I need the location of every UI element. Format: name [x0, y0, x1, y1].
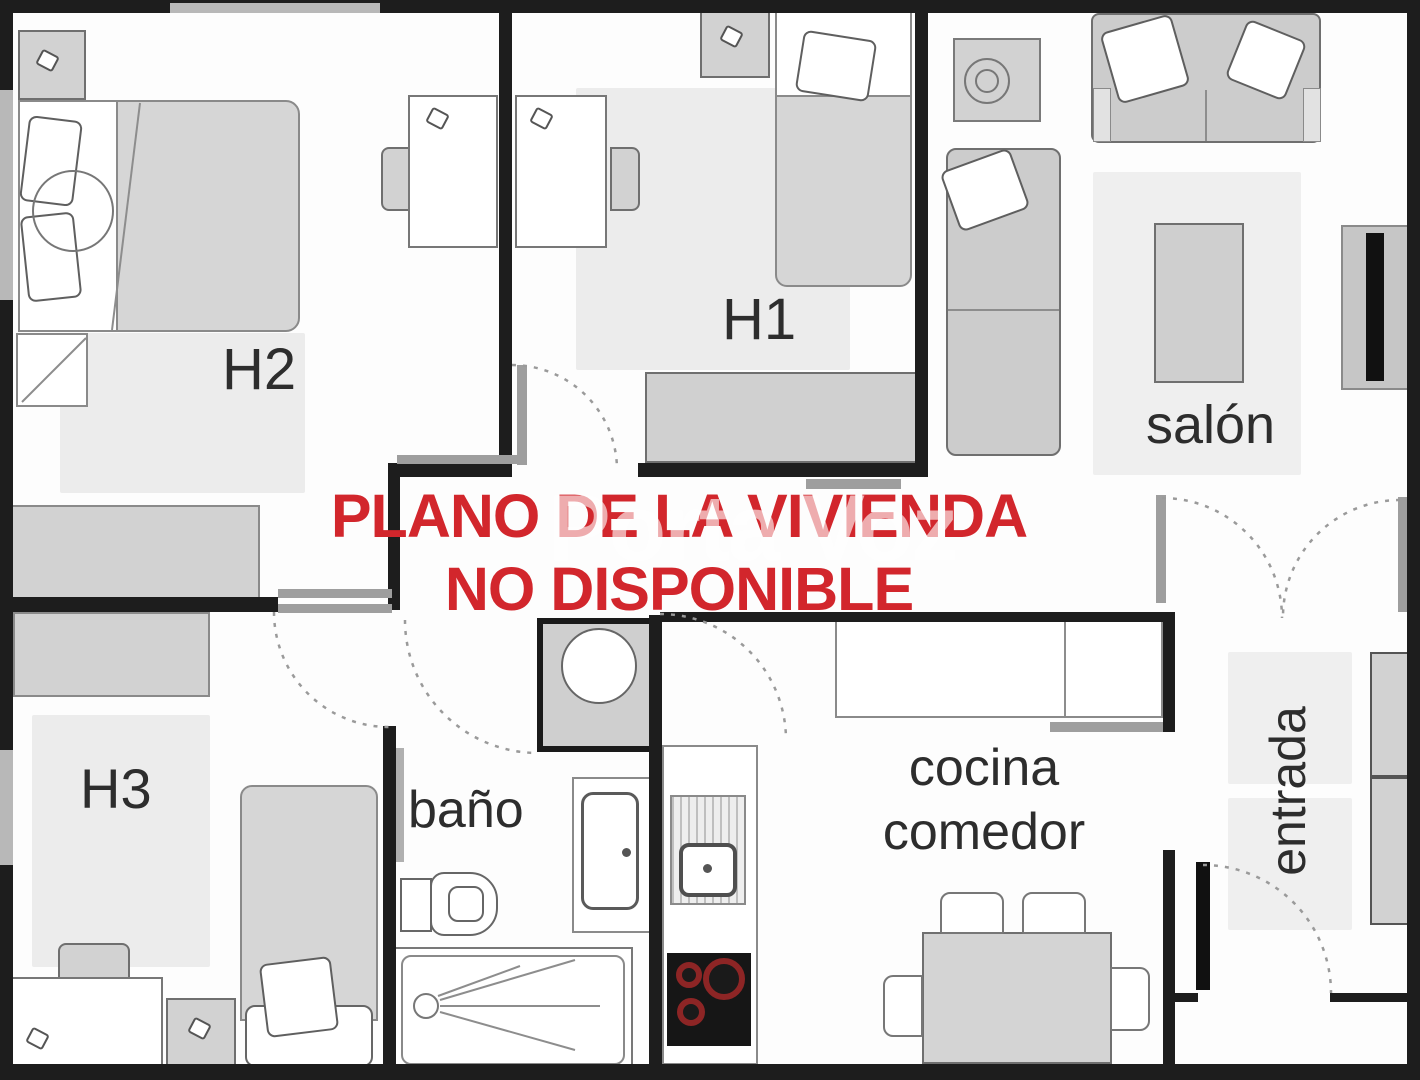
h2-desk-chair: [381, 147, 411, 211]
site-watermark: Porta Voz: [548, 474, 957, 582]
hob-burner-small-bottom: [677, 998, 705, 1026]
h1-desk: [515, 95, 607, 248]
hob-burner-large: [703, 958, 745, 1000]
salon-sofa-armrest-right: [1303, 88, 1321, 142]
shower-drain-icon: [413, 993, 439, 1019]
h2-wardrobe: [10, 505, 260, 599]
tv-icon: [1366, 233, 1384, 381]
wall-right: [1407, 0, 1420, 1080]
room-label-bano: baño: [408, 780, 524, 840]
room-label-comedor: comedor: [869, 802, 1099, 862]
room-label-h3: H3: [80, 756, 152, 821]
dining-chair-top-right: [1022, 892, 1086, 934]
dining-table: [922, 932, 1112, 1064]
toilet-seat: [448, 886, 484, 922]
h3-desk: [8, 977, 163, 1072]
salon-coffee-table: [1154, 223, 1244, 383]
h3-pillow: [259, 956, 339, 1038]
door-arc-bano: [405, 620, 538, 753]
entry-door-leaf: [1196, 862, 1210, 990]
h3-desk-chair: [58, 943, 130, 979]
dining-chair-top-left: [940, 892, 1004, 934]
floorplan-canvas: H2 H1 salón H3 baño cocina comedor entra…: [0, 0, 1420, 1080]
h2-desk: [408, 95, 498, 248]
h1-desk-chair: [610, 147, 640, 211]
wall-h1-salon: [915, 0, 928, 473]
salon-door-stub-left: [1156, 495, 1166, 603]
dining-chair-left: [883, 975, 923, 1037]
door-arc-h1: [512, 365, 617, 470]
wall-bano-west: [383, 726, 396, 1064]
toilet-tank: [400, 878, 432, 932]
wall-bano-cocina: [649, 615, 662, 1064]
entrada-closet-upper: [1370, 652, 1412, 777]
wall-cocina-entrada-stub: [1163, 612, 1175, 732]
door-arc-h3: [274, 612, 389, 727]
entrada-closet-lower: [1370, 777, 1412, 925]
cocina-counter-top: [835, 620, 1163, 718]
salon-sofa-armrest-left: [1093, 88, 1111, 142]
window-left-h2: [0, 90, 13, 300]
h2-bedside-unit: [16, 333, 88, 407]
cocina-entrada-sliding-bar: [1050, 722, 1163, 732]
door-arc-salon-left: [1162, 498, 1282, 618]
window-top-h2: [170, 3, 380, 13]
window-left-h3: [0, 750, 13, 865]
faucet-icon: [703, 864, 712, 873]
h2-bed-mattress: [100, 100, 300, 332]
room-label-salon: salón: [1146, 394, 1275, 456]
h1-pillow: [795, 30, 878, 103]
salon-door-stub-right: [1398, 497, 1407, 612]
faucet-icon: [622, 848, 631, 857]
room-label-h1: H1: [722, 286, 796, 353]
h1-sideboard: [645, 372, 918, 463]
wall-corridor-top: [388, 463, 512, 477]
room-label-entrada: entrada: [1259, 651, 1317, 931]
wall-entry-right: [1330, 993, 1420, 1002]
h3-rug: [32, 715, 210, 967]
corridor-door-bar: [397, 455, 527, 464]
dining-chair-right: [1110, 967, 1150, 1031]
room-label-h2: H2: [222, 336, 296, 403]
h1-bed-mattress: [775, 95, 912, 287]
hob-burner-small-top: [676, 962, 702, 988]
h2-round-table: [32, 170, 114, 252]
wall-bottom: [0, 1064, 1420, 1080]
wall-entry-stub: [1168, 993, 1198, 1002]
h1-door-leaf: [517, 365, 527, 465]
h3-wardrobe: [13, 612, 210, 697]
room-label-cocina: cocina: [869, 738, 1099, 798]
washing-machine-drum-icon: [561, 628, 637, 704]
wall-h2-h1: [499, 0, 512, 473]
door-arc-salon-right: [1283, 500, 1400, 618]
salon-plate-inner: [975, 69, 999, 93]
door-arc-cocina: [660, 614, 786, 740]
wall-cocina-entrada-lower: [1163, 850, 1175, 1064]
